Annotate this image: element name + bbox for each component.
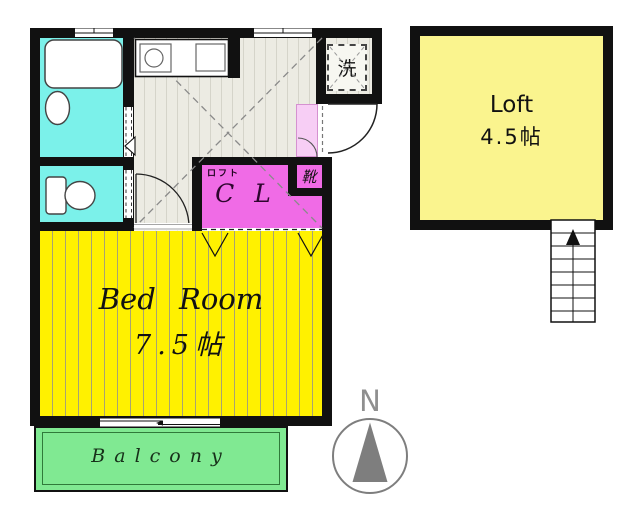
laundry-label: 洗: [337, 54, 356, 81]
washer-space-icon: 洗: [327, 44, 367, 91]
floor-plan: Balcony 洗 ロフト C L 靴 Bed Room 7.5帖 Loft 4…: [0, 0, 640, 511]
wall-closet-top: [192, 157, 288, 165]
shoe-cabinet-label: 靴: [295, 166, 323, 187]
loft-size: 4.5帖: [410, 121, 613, 151]
hallway-floor: [134, 157, 192, 231]
entrance-door-swing-icon: [328, 104, 377, 153]
entry-door-panel: [296, 104, 318, 157]
closet-floor-extension: [288, 196, 322, 228]
wall-bath-right: [123, 28, 134, 231]
stairs-up-arrow-icon: [551, 220, 595, 322]
wall-right-lower: [322, 157, 332, 426]
bedroom-label: Bed Room: [40, 282, 322, 316]
wall-kitchen-stub: [228, 28, 240, 78]
closet-loft-note: ロフト: [207, 166, 269, 179]
balcony-label: Balcony: [36, 445, 286, 467]
wall-shoe-bottom: [288, 188, 322, 196]
toilet-room-floor: [40, 166, 123, 222]
wall-laundry-left: [316, 28, 326, 104]
compass-north-icon: [333, 419, 407, 493]
kitchen-floor: [134, 38, 316, 157]
wall-bottom: [30, 416, 332, 426]
compass-north-label: N: [350, 384, 390, 418]
bedroom-size: 7.5帖: [40, 323, 322, 362]
wall-bath-toilet-divider: [30, 157, 134, 166]
loft-label: Loft: [410, 92, 613, 118]
bathroom-floor: [40, 38, 123, 157]
closet-label: C L: [200, 179, 292, 208]
balcony: Balcony: [34, 426, 288, 492]
wall-right-upper: [372, 28, 382, 104]
wall-bedroom-top-left: [30, 222, 134, 231]
wall-under-laundry: [316, 94, 382, 104]
wall-top: [30, 28, 382, 38]
